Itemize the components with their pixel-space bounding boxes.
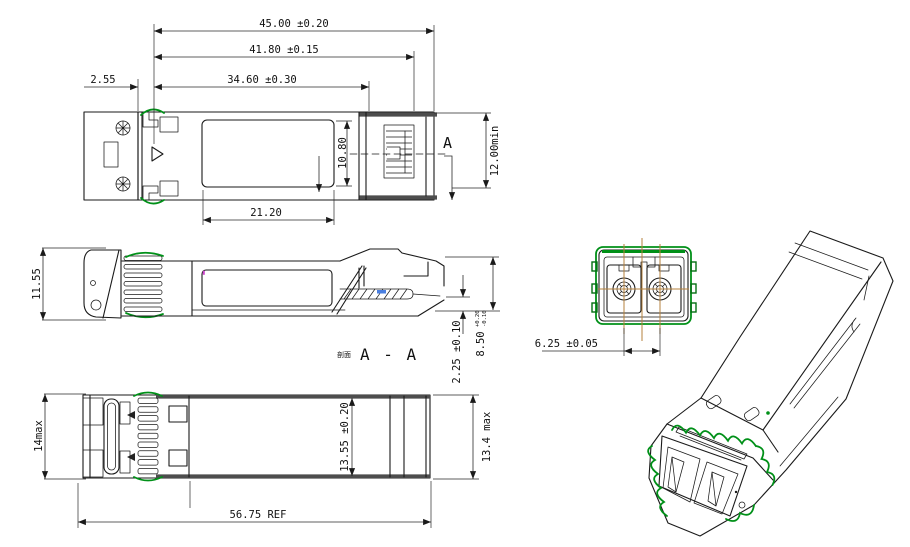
- dim-length-to-latch: 41.80 ±0.15: [249, 44, 319, 56]
- side-view-outline: [84, 249, 444, 318]
- dim-body-length: 34.60 ±0.30: [227, 74, 297, 86]
- dim-nose-height: 8.50: [475, 331, 487, 356]
- side-view: 11.55 2.25 ±0.10 8.50 +0.20 -0.10 剖面 A -…: [31, 248, 500, 384]
- dim-nose-height-group: 8.50 +0.20 -0.10: [475, 310, 488, 356]
- sfp-mechanical-drawing: 45.00 ±0.20 41.80 ±0.15 34.60 ±0.30 2.55…: [0, 0, 910, 547]
- accent-mark: [203, 271, 205, 275]
- highlight-mark: [377, 290, 386, 294]
- dim-side-height: 11.55: [31, 268, 43, 300]
- bottom-view-dimensions: 14max 13.55 ±0.20 13.4 max 56.75 REF: [33, 394, 493, 528]
- section-label: A - A: [360, 345, 418, 364]
- iso-view: [648, 231, 893, 536]
- top-vent-holes: [705, 394, 760, 422]
- emi-gasket-side-bottom: [126, 313, 163, 317]
- dim-overall-ref: 56.75 REF: [230, 509, 287, 521]
- drawing-canvas: 45.00 ±0.20 41.80 ±0.15 34.60 ±0.30 2.55…: [0, 0, 910, 547]
- dim-pcb-thickness: 2.25 ±0.10: [451, 320, 463, 383]
- dim-nose-height-tol-minus: -0.10: [482, 310, 488, 327]
- front-view-dimensions: 6.25 ±0.05: [535, 328, 660, 356]
- section-cut-marker: A: [443, 134, 452, 152]
- green-dot: [766, 411, 770, 415]
- emi-side-tabs: [592, 262, 696, 312]
- top-view: 45.00 ±0.20 41.80 ±0.15 34.60 ±0.30 2.55…: [84, 18, 501, 225]
- emi-fingers-side: [124, 256, 162, 312]
- bottom-view-outline: [83, 393, 430, 509]
- dim-label-width: 10.80: [337, 137, 349, 169]
- dim-front-height: 14max: [33, 420, 45, 452]
- dim-label-length: 21.20: [250, 207, 282, 219]
- emi-fingers-bottom: [138, 398, 158, 474]
- bottom-view: 14max 13.55 ±0.20 13.4 max 56.75 REF: [33, 393, 493, 529]
- dim-port-pitch: 6.25 ±0.05: [535, 338, 598, 350]
- screw-bottom: [116, 177, 130, 191]
- dim-overall-length: 45.00 ±0.20: [259, 18, 329, 30]
- emi-gasket-bottom: [141, 198, 164, 204]
- polarity-triangle-top: [127, 411, 135, 419]
- connector-pins: [384, 125, 414, 178]
- section-label-group: 剖面 A - A: [337, 345, 418, 364]
- top-view-dimensions: 45.00 ±0.20 41.80 ±0.15 34.60 ±0.30 2.55…: [84, 18, 501, 225]
- label-recess: [202, 120, 334, 187]
- front-view: 6.25 ±0.05: [535, 238, 696, 356]
- lc-slot: [104, 399, 119, 474]
- dim-bezel-offset: 2.55: [90, 74, 115, 86]
- dim-min-width: 12.00min: [489, 126, 501, 177]
- pcb-tab: [340, 289, 440, 299]
- iso-body: [649, 231, 893, 536]
- section-label-prefix: 剖面: [337, 350, 351, 359]
- dim-body-width: 13.55 ±0.20: [339, 402, 351, 472]
- top-view-outline: [84, 109, 448, 203]
- dim-nose-height-tol-plus: +0.20: [475, 310, 481, 327]
- screw-top: [116, 121, 130, 135]
- polarity-triangle-bottom: [127, 453, 135, 461]
- dim-max-width: 13.4 max: [481, 412, 493, 463]
- front-view-centerlines: [598, 238, 689, 341]
